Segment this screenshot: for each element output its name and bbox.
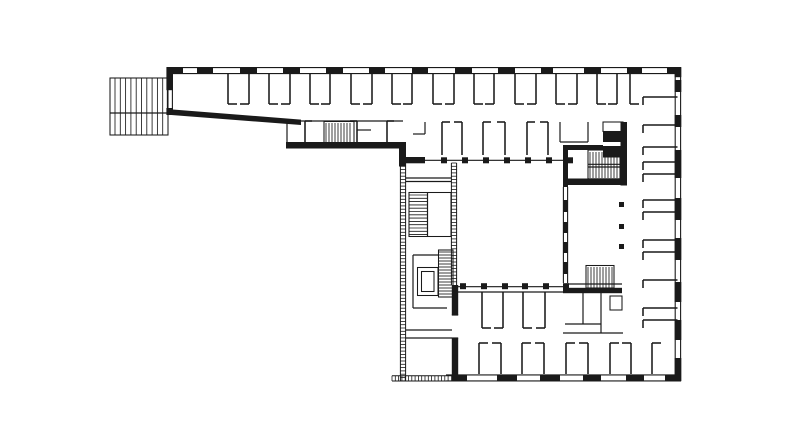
facade-rails (167, 67, 682, 381)
gallery-column-dots (619, 202, 624, 249)
bearing-walls (166, 67, 627, 375)
floor-plan-svg (0, 0, 792, 442)
south-wing-diagonal-wall (167, 109, 302, 125)
stair-treads-vertical (115, 78, 617, 288)
stair-treads-horizontal (410, 195, 453, 294)
courtyard-columns (441, 157, 573, 289)
room-partitions-horizontal (643, 97, 678, 328)
floor-plan-canvas (0, 0, 792, 442)
exterior-window-dashes (170, 67, 681, 381)
